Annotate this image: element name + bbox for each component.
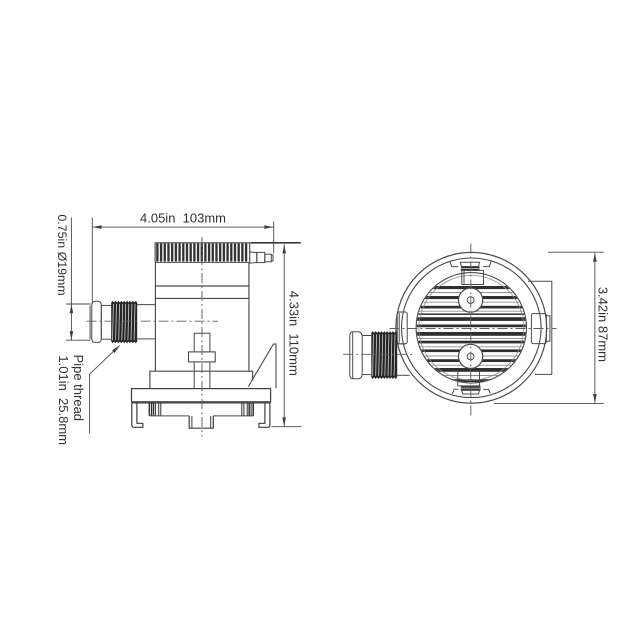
svg-text:Pipe thread: Pipe thread — [71, 355, 86, 422]
svg-text:3.42in 87mm: 3.42in 87mm — [595, 287, 610, 362]
svg-text:4.33in 110mm: 4.33in 110mm — [286, 291, 301, 376]
svg-text:1.01in 25.8mm: 1.01in 25.8mm — [56, 355, 71, 445]
svg-text:0.75in Ø19mm: 0.75in Ø19mm — [55, 214, 69, 295]
svg-text:4.05in 103mm: 4.05in 103mm — [140, 211, 226, 226]
